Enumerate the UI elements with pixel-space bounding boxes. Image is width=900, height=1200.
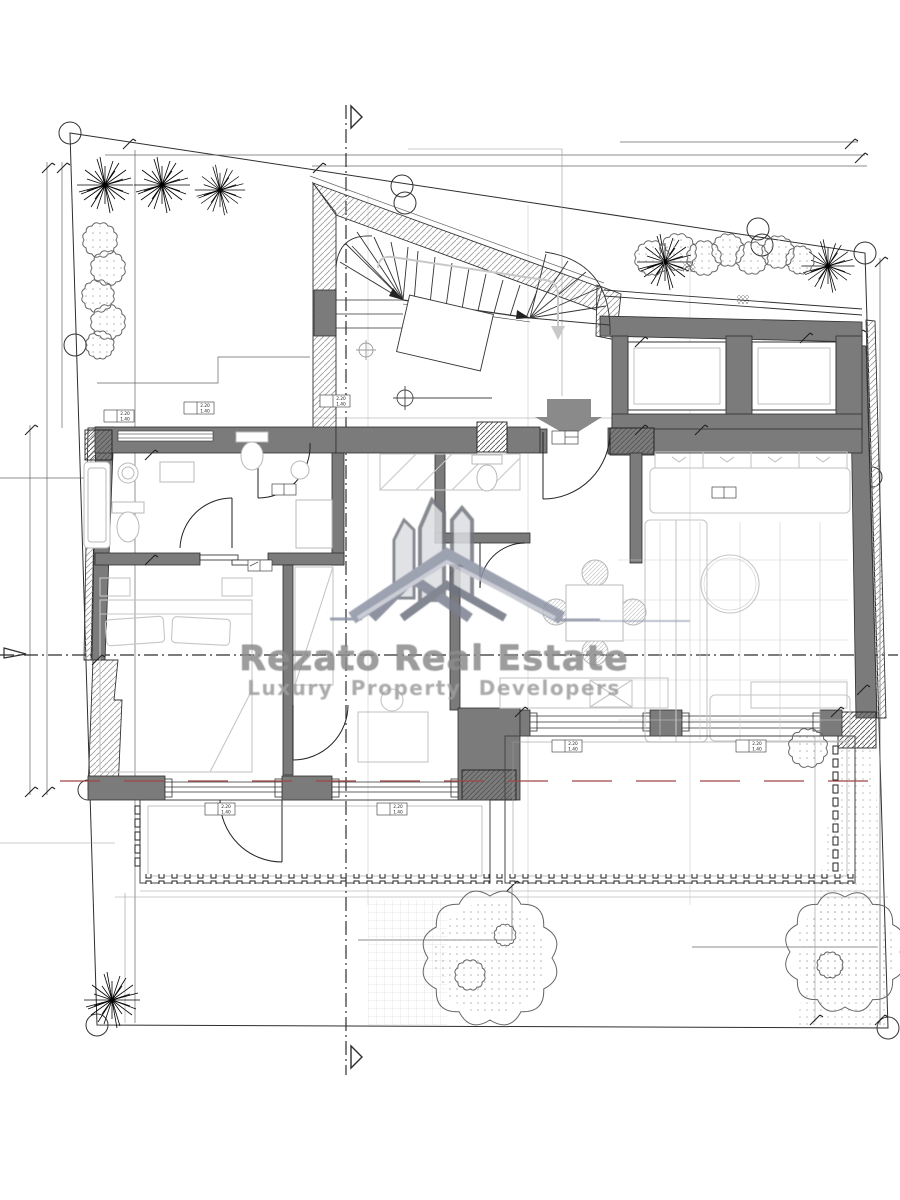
watermark-subtitle: Luxury Property Developers	[247, 676, 621, 700]
axis-flag-top	[351, 106, 362, 128]
svg-text:2.20: 2.20	[336, 396, 346, 402]
tree-3	[195, 165, 245, 215]
floor-plan-drawing: 2.201.40 2.201.40 2.201.40 2.201.40 2.20…	[0, 0, 900, 1200]
svg-text:2.20: 2.20	[200, 403, 210, 409]
column-hatched-3	[85, 430, 112, 460]
target-symbol-1	[393, 386, 492, 410]
coffee-table	[701, 555, 759, 613]
dining-table	[566, 585, 623, 641]
axis-flag-bottom	[351, 1046, 362, 1068]
window-south-2	[332, 779, 458, 797]
bush-column-left	[82, 223, 125, 359]
window-tag-top: 2.20	[120, 411, 130, 417]
pier-corner-southeast	[838, 712, 876, 748]
svg-text:2.20: 2.20	[393, 804, 403, 810]
shaft-room-right	[752, 342, 836, 410]
tree-6	[84, 972, 140, 1028]
column-hatched-2	[610, 428, 654, 455]
svg-text:1.40: 1.40	[200, 409, 210, 415]
window-south-1	[165, 779, 282, 797]
window-south-4	[682, 713, 820, 731]
bath1-door	[180, 498, 232, 548]
column-hatched-1	[477, 422, 507, 452]
window-tag-bottom: 1.40	[120, 417, 130, 423]
svg-text:1.40: 1.40	[393, 810, 403, 816]
wall-north-living	[654, 429, 862, 453]
svg-text:1.40: 1.40	[336, 402, 346, 408]
sofa	[645, 452, 850, 742]
tree-1	[77, 157, 133, 213]
wall-west-lower	[88, 660, 122, 790]
bed	[100, 578, 252, 772]
svg-text:2.20: 2.20	[221, 804, 231, 810]
railing-posts-left	[135, 806, 140, 866]
window-south-3	[530, 713, 650, 731]
bush-row-top-right	[635, 234, 814, 276]
logo-tower-tall	[452, 508, 472, 595]
watermark-title: Rezato Real Estate	[239, 639, 629, 679]
svg-text:1.40: 1.40	[221, 810, 231, 816]
target-symbol-2	[356, 340, 376, 360]
railing-posts-bottom	[142, 874, 855, 884]
floor-plan-page: 2.201.40 2.201.40 2.201.40 2.201.40 2.20…	[0, 0, 900, 1200]
bedroom-door	[293, 705, 348, 760]
svg-text:1.40: 1.40	[752, 747, 762, 753]
tree-2	[134, 157, 190, 213]
planting	[77, 157, 900, 1028]
svg-text:2.20: 2.20	[568, 741, 578, 747]
svg-text:1.40: 1.40	[568, 747, 578, 753]
axis-arrow-left	[4, 648, 26, 658]
sideboard	[751, 682, 847, 708]
shaft-room-left	[628, 342, 726, 410]
svg-text:2.20: 2.20	[752, 741, 762, 747]
